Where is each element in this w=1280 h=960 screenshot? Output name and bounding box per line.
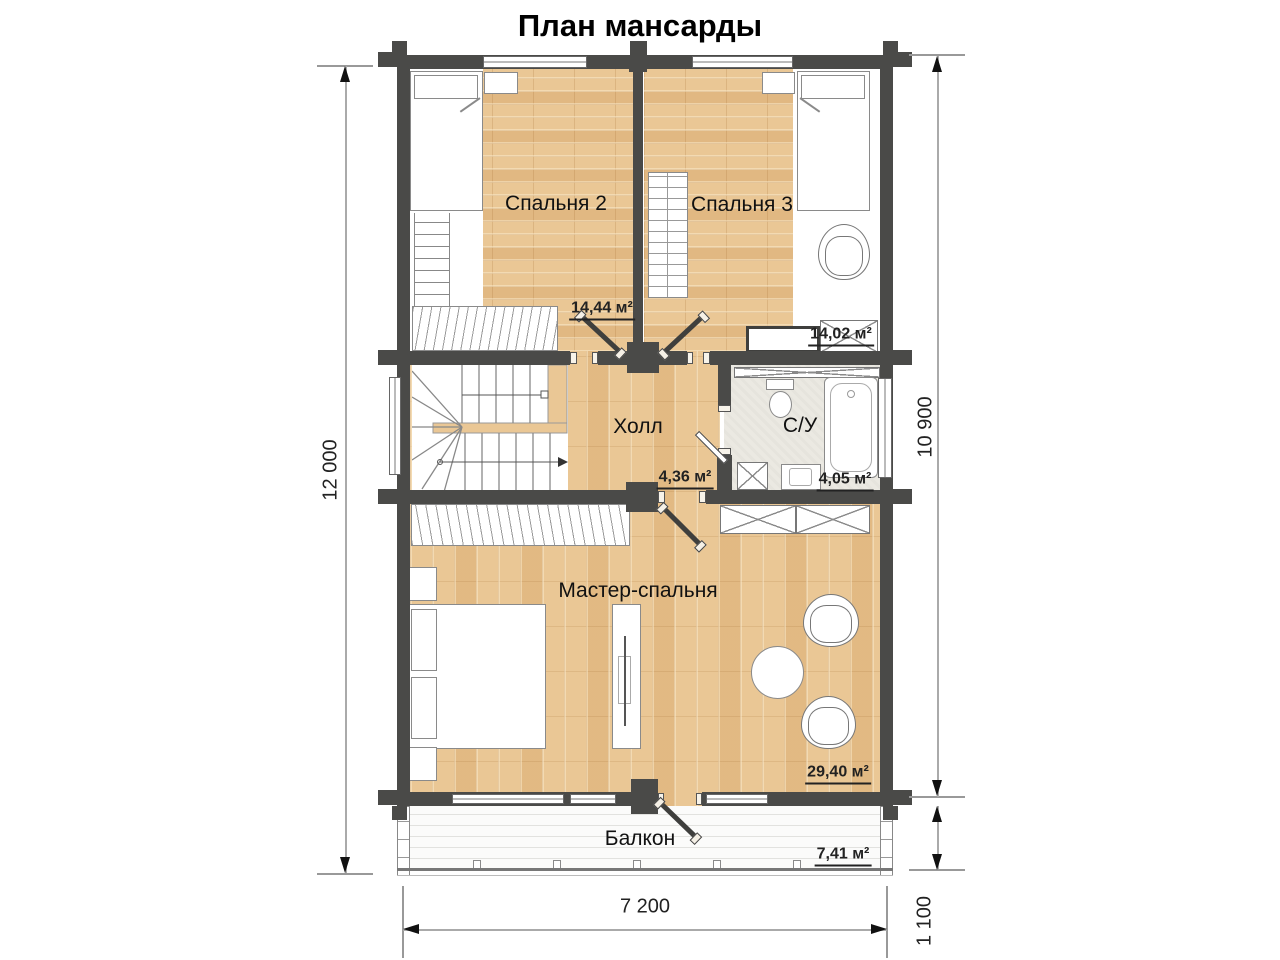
- hall-label: Холл: [613, 415, 663, 439]
- dim-left-value: 12 000: [320, 439, 343, 500]
- master-label: Мастер-спальня: [558, 579, 717, 603]
- dim-arrow: [340, 66, 350, 82]
- window-master-3: [706, 794, 768, 804]
- bathroom-label: С/У: [783, 414, 817, 438]
- dim-arrow: [932, 780, 942, 796]
- dim-tick: [886, 886, 888, 958]
- log-stub: [378, 489, 397, 504]
- master-dresser-2: [796, 505, 870, 534]
- wall-end-cap: [687, 352, 693, 364]
- balcony-railing-edge: [397, 875, 893, 876]
- log-stub: [893, 350, 912, 365]
- dim-bottom-value: 7 200: [620, 896, 670, 919]
- log-stub: [883, 806, 898, 820]
- dim-right-upper-value: 10 900: [915, 396, 938, 457]
- dim-arrow: [932, 806, 942, 822]
- wall-b-column: [626, 482, 658, 512]
- wall-end-cap: [696, 793, 702, 805]
- log-stub: [893, 489, 912, 504]
- window-top-bedroom3: [692, 56, 793, 68]
- dim-arrow: [932, 56, 942, 72]
- master-wardrobe: [411, 504, 630, 546]
- master-armchair-1: [803, 594, 859, 647]
- dim-tick: [402, 886, 404, 958]
- master-round-table: [751, 646, 804, 699]
- window-bathroom: [878, 378, 892, 478]
- bathroom-sink: [789, 468, 812, 486]
- wall-a-right: [710, 351, 893, 365]
- balcony-door-column: [631, 779, 658, 814]
- master-armchair-2: [801, 696, 856, 749]
- wall-end-cap: [718, 405, 731, 412]
- toilet-tank: [766, 379, 794, 390]
- floor-plan: План мансарды: [0, 0, 1280, 960]
- master-nightstand-top: [407, 567, 437, 601]
- wall-end-cap: [703, 352, 710, 364]
- bedroom3-pillow: [801, 75, 865, 99]
- window-master-1: [452, 794, 564, 804]
- log-stub: [893, 790, 912, 805]
- master-area: 29,40 м²: [805, 764, 871, 785]
- bedroom2-nightstand: [484, 72, 518, 94]
- bedroom2-ladder: [414, 213, 450, 307]
- dim-arrow: [871, 924, 887, 934]
- dim-line-left: [345, 66, 347, 873]
- window-top-bedroom2: [483, 56, 587, 68]
- wall-a-column: [627, 342, 659, 373]
- log-stub: [378, 350, 397, 365]
- wall-end-cap: [699, 491, 706, 503]
- bathtub-drain: [847, 390, 855, 398]
- bedroom2-area: 14,44 м²: [569, 300, 635, 321]
- master-tv-screen: [624, 636, 626, 726]
- bedroom3-nightstand: [762, 72, 795, 94]
- bedroom2-wardrobe: [412, 306, 558, 351]
- bathroom-area: 4,05 м²: [817, 471, 874, 492]
- balcony-railing: [397, 868, 893, 871]
- dim-line-bottom: [403, 929, 887, 931]
- master-pillow-1: [411, 609, 437, 671]
- staircase: [412, 365, 568, 492]
- master-dresser-1: [720, 505, 796, 534]
- window-stairs: [389, 377, 401, 475]
- wall-end-cap: [592, 352, 598, 364]
- page-title: План мансарды: [518, 8, 762, 44]
- bedroom3-closet: [648, 172, 688, 298]
- hall-area: 4,36 м²: [657, 469, 714, 490]
- bedroom3-armchair: [818, 224, 870, 280]
- log-stub: [392, 806, 407, 820]
- washing-machine: [737, 462, 768, 490]
- bedroom3-area: 14,02 м²: [808, 326, 874, 347]
- log-stub: [378, 52, 397, 67]
- window-master-2: [570, 794, 616, 804]
- bedroom2-label: Спальня 2: [505, 192, 607, 216]
- wall-b-left: [397, 490, 628, 504]
- bedroom3-closet-divider: [667, 173, 668, 297]
- dim-arrow: [403, 924, 419, 934]
- dim-arrow: [340, 857, 350, 873]
- dim-right-lower-value: 1 100: [914, 896, 937, 946]
- wall-a-left: [397, 351, 570, 365]
- wall-bedrooms-divider-block: [629, 58, 647, 72]
- dim-tick: [317, 873, 373, 875]
- master-nightstand-bottom: [407, 747, 437, 781]
- bedroom3-label: Спальня 3: [691, 193, 793, 217]
- master-pillow-2: [411, 677, 437, 739]
- log-stub: [378, 790, 397, 805]
- wall-end-cap: [570, 352, 577, 364]
- wall-b-right: [706, 490, 893, 504]
- bedroom2-pillow: [414, 75, 478, 99]
- balcony-area: 7,41 м²: [815, 846, 872, 867]
- dim-arrow: [932, 854, 942, 870]
- balcony-label: Балкон: [605, 827, 675, 851]
